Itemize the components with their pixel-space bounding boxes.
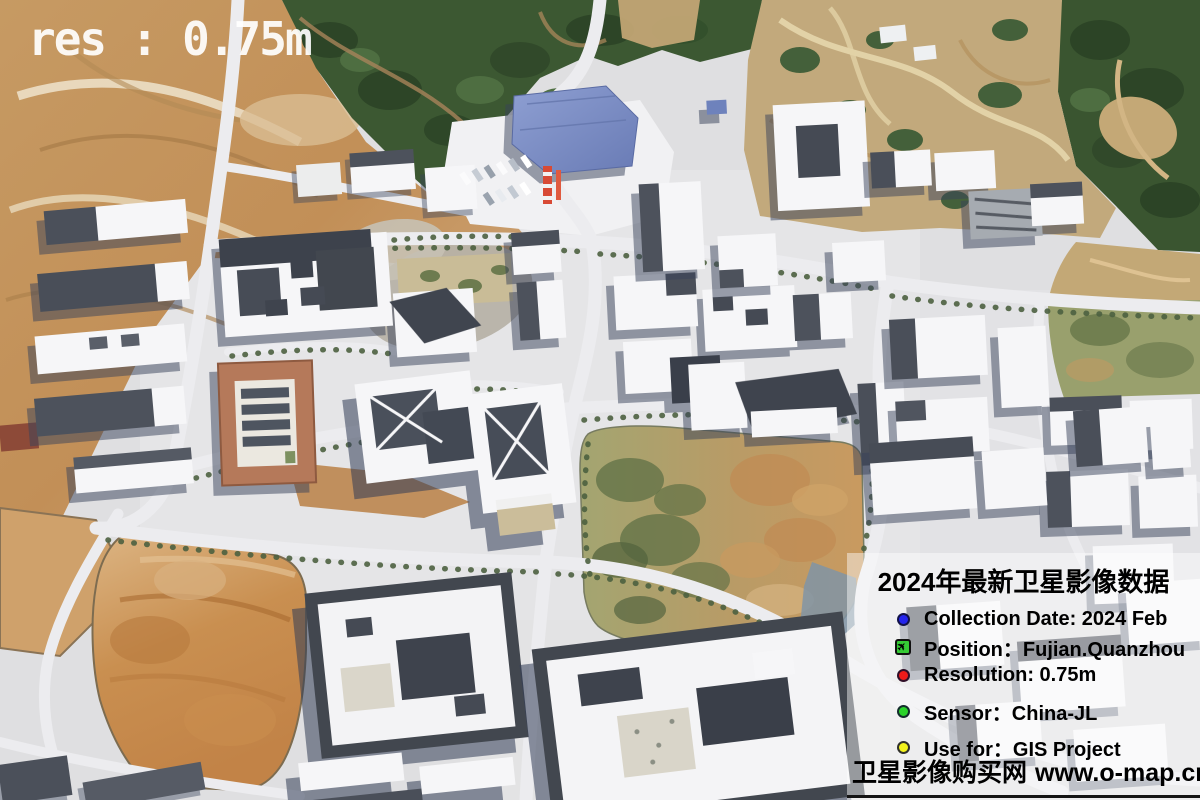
site-name: 卫星影像购买网 [852, 759, 1027, 787]
legend-label: Sensor：China-JL [924, 697, 1097, 726]
screenshot-root: res : 0.75m 2024年最新卫星影像数据 Collection Dat… [0, 0, 1200, 800]
legend-label: Collection Date: 2024 Feb [924, 608, 1167, 631]
red-dot-icon [897, 669, 910, 682]
site-url: www.o-map.cn [1035, 759, 1200, 787]
resolution-watermark: res : 0.75m [28, 12, 311, 66]
green-dot-icon [897, 705, 910, 718]
legend-label: Resolution: 0.75m [924, 664, 1096, 687]
legend-item-collection-date: Collection Date: 2024 Feb [897, 605, 1196, 633]
striped-structure [543, 166, 561, 204]
panel-footer: 卫星影像购买网www.o-map.cn [852, 753, 1200, 789]
legend-item-resolution: Resolution: 0.75m [897, 661, 1196, 689]
legend-label: Position：Fujian.Quanzhou [924, 633, 1185, 662]
panel-title: 2024年最新卫星影像数据 [847, 562, 1200, 599]
panel-legend: Collection Date: 2024 Feb ✈ Position：Fuj… [897, 605, 1196, 761]
courtyard-school [218, 360, 316, 485]
legend-item-sensor: Sensor：China-JL [897, 697, 1196, 725]
airport-icon: ✈ [895, 639, 911, 655]
yellow-dot-icon [897, 741, 910, 754]
blue-dot-icon [897, 613, 910, 626]
plane-glyph: ✈ [896, 640, 910, 654]
info-panel: 2024年最新卫星影像数据 Collection Date: 2024 Feb … [847, 553, 1200, 800]
panel-underline-rule [847, 795, 1200, 798]
legend-item-position: ✈ Position：Fujian.Quanzhou [897, 633, 1196, 661]
compound-bottomcenter [539, 619, 858, 800]
